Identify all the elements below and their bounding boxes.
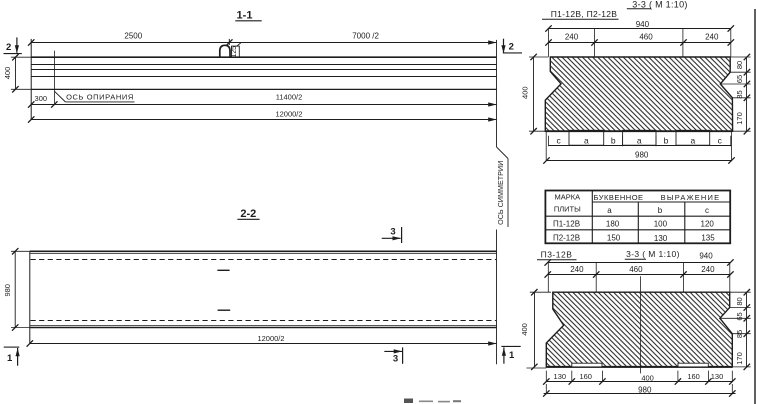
svg-text:160: 160 xyxy=(579,372,592,381)
svg-text:400: 400 xyxy=(520,86,529,99)
svg-text:а: а xyxy=(637,136,642,146)
svg-text:12000/2: 12000/2 xyxy=(275,109,302,118)
svg-text:ОСЬ СИММЕТРИИ: ОСЬ СИММЕТРИИ xyxy=(496,161,505,225)
svg-text:ВЫРАЖЕНИЕ: ВЫРАЖЕНИЕ xyxy=(661,193,721,202)
svg-text:1: 1 xyxy=(509,350,515,361)
svg-text:с: с xyxy=(718,136,723,146)
svg-text:11400/2: 11400/2 xyxy=(276,92,303,101)
svg-text:980: 980 xyxy=(638,386,652,395)
svg-text:400: 400 xyxy=(3,67,12,80)
svg-text:с: с xyxy=(556,136,561,146)
svg-text:а: а xyxy=(584,136,589,146)
svg-text:а: а xyxy=(607,206,612,215)
svg-text:240: 240 xyxy=(701,265,715,274)
svg-text:240: 240 xyxy=(570,265,584,274)
svg-text:400: 400 xyxy=(520,323,529,336)
svg-text:12000/2: 12000/2 xyxy=(257,334,284,343)
svg-text:80: 80 xyxy=(735,61,744,69)
svg-text:400: 400 xyxy=(641,373,654,382)
svg-text:1-1: 1-1 xyxy=(237,9,253,21)
svg-text:7000 /2: 7000 /2 xyxy=(352,31,379,40)
svg-text:130: 130 xyxy=(711,372,724,381)
svg-text:130: 130 xyxy=(654,234,668,243)
svg-text:65: 65 xyxy=(735,75,744,83)
svg-text:65: 65 xyxy=(735,312,744,320)
svg-text:1: 1 xyxy=(7,353,13,364)
svg-text:300: 300 xyxy=(35,94,48,103)
svg-text:П3-12В: П3-12В xyxy=(541,249,573,259)
svg-text:100: 100 xyxy=(654,220,668,229)
svg-text:85: 85 xyxy=(735,90,744,98)
svg-text:150: 150 xyxy=(607,234,621,243)
svg-text:130: 130 xyxy=(554,372,567,381)
svg-text:125: 125 xyxy=(231,46,238,58)
svg-text:2: 2 xyxy=(509,41,514,52)
svg-text:240: 240 xyxy=(705,33,719,42)
svg-text:85: 85 xyxy=(735,330,744,338)
svg-text:940: 940 xyxy=(699,252,713,261)
svg-text:120: 120 xyxy=(701,220,715,229)
svg-text:3: 3 xyxy=(393,354,398,365)
svg-text:160: 160 xyxy=(687,372,700,381)
svg-text:980: 980 xyxy=(3,284,12,297)
svg-text:2-2: 2-2 xyxy=(240,208,256,220)
svg-text:460: 460 xyxy=(639,33,653,42)
svg-text:П1-12В: П1-12В xyxy=(553,220,580,229)
svg-text:b: b xyxy=(658,206,663,215)
svg-text:170: 170 xyxy=(735,352,744,365)
svg-text:П2-12В: П2-12В xyxy=(553,234,580,243)
svg-text:940: 940 xyxy=(636,20,650,29)
svg-text:ОСЬ ОПИРАНИЯ: ОСЬ ОПИРАНИЯ xyxy=(66,93,134,102)
svg-text:80: 80 xyxy=(735,297,744,305)
svg-text:а: а xyxy=(691,136,696,146)
svg-text:БУКВЕННОЕ: БУКВЕННОЕ xyxy=(593,193,643,202)
svg-text:ПЛИТЫ: ПЛИТЫ xyxy=(554,205,581,214)
svg-text:П1-12В, П2-12В: П1-12В, П2-12В xyxy=(551,9,618,19)
svg-text:b: b xyxy=(664,136,669,146)
svg-text:980: 980 xyxy=(635,150,649,159)
svg-text:3: 3 xyxy=(390,226,395,237)
svg-text:240: 240 xyxy=(565,33,579,42)
svg-text:460: 460 xyxy=(629,265,643,274)
svg-text:3-3 ( М 1:10): 3-3 ( М 1:10) xyxy=(626,249,680,259)
svg-text:2: 2 xyxy=(6,42,11,53)
svg-text:135: 135 xyxy=(701,234,715,243)
svg-text:с: с xyxy=(705,206,709,215)
svg-text:170: 170 xyxy=(735,112,744,125)
svg-text:180: 180 xyxy=(606,220,620,229)
svg-text:2500: 2500 xyxy=(124,31,142,40)
svg-text:МАРКА: МАРКА xyxy=(554,193,580,202)
svg-text:b: b xyxy=(611,136,616,146)
svg-text:3-3 ( М 1:10): 3-3 ( М 1:10) xyxy=(632,0,687,9)
